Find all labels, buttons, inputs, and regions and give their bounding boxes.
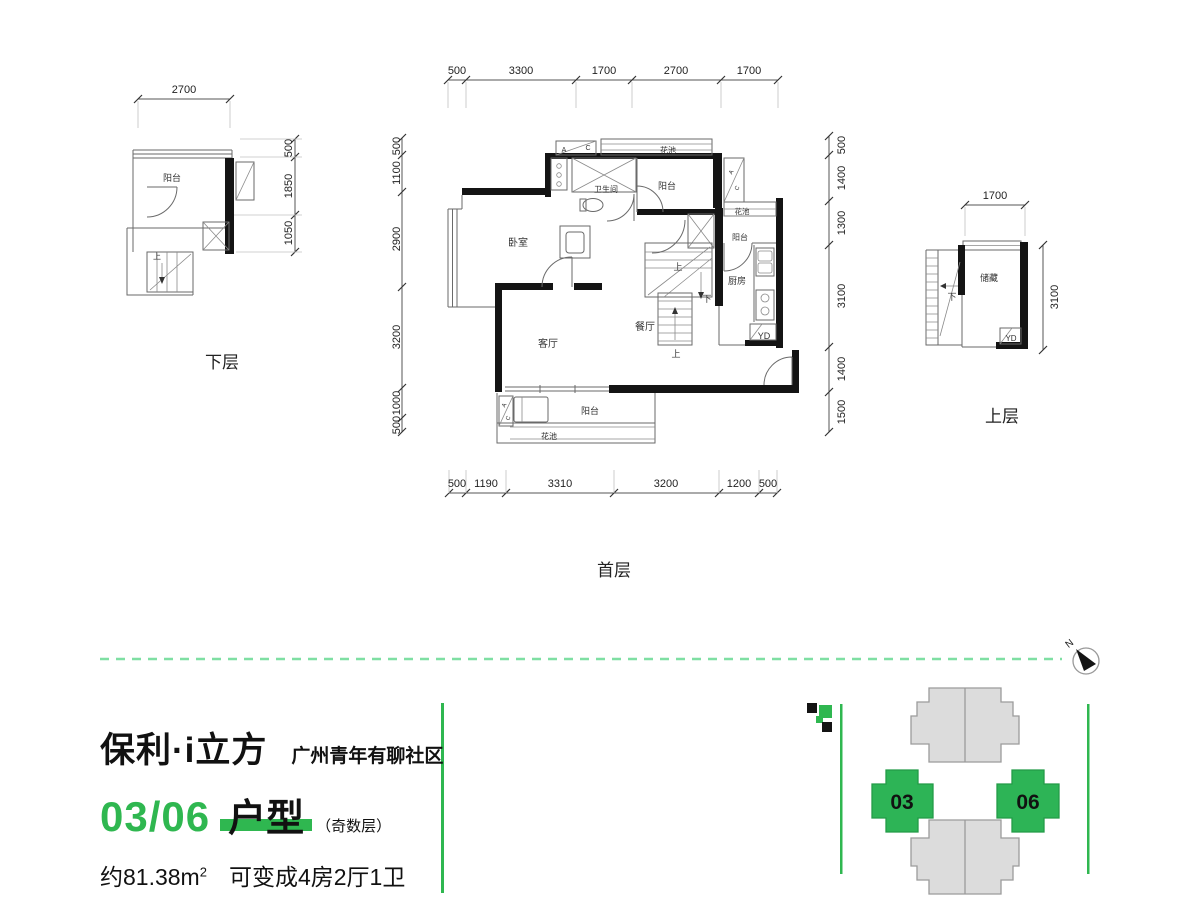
project-subtitle: 广州青年有聊社区 xyxy=(291,741,443,768)
upper-plan-walls xyxy=(926,241,1028,349)
unit-type-row: 03/06 户型 （奇数层） xyxy=(100,787,430,842)
dim-label: 1700 xyxy=(737,65,761,77)
dim-label: 1850 xyxy=(283,174,295,198)
stair-label-up: 上 xyxy=(673,262,682,272)
dim-label: 500 xyxy=(836,136,848,154)
room-label-balcony: 阳台 xyxy=(163,172,181,183)
room-label-flower-bed: 花池 xyxy=(541,431,557,441)
room-label-balcony: 阳台 xyxy=(658,180,676,191)
dim-label: 500 xyxy=(391,137,403,155)
brand-divider-line xyxy=(441,703,444,893)
ac-label-a: A xyxy=(562,147,567,154)
dim-label: 1050 xyxy=(283,221,295,245)
room-label-flower-bed: 花池 xyxy=(735,206,750,216)
room-label-laundry: YD xyxy=(758,331,771,341)
dim-label: 2700 xyxy=(664,65,688,77)
site-left-line xyxy=(840,704,843,874)
ac-label-c: C xyxy=(734,185,742,192)
dim-label: 3300 xyxy=(509,65,533,77)
dim-label: 500 xyxy=(283,139,295,157)
floor-note: （奇数层） xyxy=(316,815,391,842)
stair-label-down: 下 xyxy=(702,294,711,304)
room-label-bathroom: 卫生间 xyxy=(594,184,618,194)
compass-north-label: N xyxy=(1064,637,1076,650)
dim-label: 1500 xyxy=(836,400,848,424)
site-plan: 03 06 xyxy=(807,688,1090,894)
first-floor-caption: 首层 xyxy=(597,561,631,580)
room-label-living: 客厅 xyxy=(538,337,558,350)
upper-plan: 1700 3100 储藏 YD 下 上层 xyxy=(926,190,1061,426)
dim-label: 1190 xyxy=(474,478,498,490)
stair-arrow-left xyxy=(940,283,946,289)
dim-label: 2700 xyxy=(172,84,196,96)
stair-label-up: 上 xyxy=(671,349,680,359)
ac-label-c: C xyxy=(585,145,590,152)
branding-block: 保利·i立方 广州青年有聊社区 03/06 户型 （奇数层） 约81.38m2可… xyxy=(100,722,430,892)
dim-label: 1000 xyxy=(391,391,403,415)
checker-decoration-icon xyxy=(807,703,832,732)
dim-label: 500 xyxy=(448,478,466,490)
room-label-storage: 储藏 xyxy=(980,272,998,283)
lower-plan-walls xyxy=(127,150,254,295)
dim-label: 3100 xyxy=(1049,285,1061,309)
compass: N xyxy=(1064,637,1099,674)
lower-plan-caption: 下层 xyxy=(205,353,239,372)
area-superscript: 2 xyxy=(200,864,207,879)
unit-type-label: 户型 xyxy=(220,787,312,842)
dim-label: 500 xyxy=(759,478,777,490)
area-row: 约81.38m2可变成4房2厅1卫 xyxy=(100,858,430,892)
lower-plan-dimensions: 2700 500 1850 1050 xyxy=(134,84,302,256)
project-title: 保利·i立方 xyxy=(100,722,267,773)
lower-plan: 2700 500 1850 1050 阳台 上 下层 xyxy=(127,84,302,372)
dim-label: 1400 xyxy=(836,166,848,190)
dim-label: 3200 xyxy=(654,478,678,490)
room-label-balcony: 阳台 xyxy=(581,405,599,416)
dim-label: 1700 xyxy=(592,65,616,77)
ac-label-c: C xyxy=(505,415,513,422)
dim-label: 1700 xyxy=(983,190,1007,202)
dim-label: 500 xyxy=(391,416,403,434)
unit-03-label: 03 xyxy=(890,791,913,814)
dim-label: 1400 xyxy=(836,357,848,381)
room-label-flower-bed: 花池 xyxy=(660,145,676,155)
room-label-balcony: 阳台 xyxy=(732,232,748,242)
dim-label: 1200 xyxy=(727,478,751,490)
floorplan-page: 2700 500 1850 1050 阳台 上 下层 xyxy=(0,0,1200,900)
dim-label: 3310 xyxy=(548,478,572,490)
first-floor-plan: 500 3300 1700 2700 1700 500 1100 2900 32… xyxy=(391,65,848,580)
branding-title-row: 保利·i立方 广州青年有聊社区 xyxy=(100,722,430,773)
dim-label: 3100 xyxy=(836,284,848,308)
dim-label: 2900 xyxy=(391,227,403,251)
site-right-line xyxy=(1087,704,1090,874)
unit-06-label: 06 xyxy=(1016,791,1039,814)
stair-label-up: 上 xyxy=(153,252,161,261)
layout-description: 可变成4房2厅1卫 xyxy=(229,864,405,890)
area-value: 约81.38m xyxy=(100,864,200,890)
ac-label-a: A xyxy=(728,169,735,175)
stair-arrow xyxy=(159,277,165,284)
room-label-dining: 餐厅 xyxy=(635,320,655,333)
unit-numbers: 03/06 xyxy=(100,793,210,841)
room-label-bedroom: 卧室 xyxy=(508,236,528,249)
dim-label: 500 xyxy=(448,65,466,77)
stair-label-down: 下 xyxy=(947,292,956,302)
dim-label: 1100 xyxy=(391,161,403,185)
dim-label: 3200 xyxy=(391,325,403,349)
room-label-laundry: YD xyxy=(1005,334,1016,343)
dim-label: 1300 xyxy=(836,211,848,235)
upper-plan-caption: 上层 xyxy=(985,407,1019,426)
stair-arrow-up xyxy=(672,307,678,314)
room-label-kitchen: 厨房 xyxy=(728,275,746,286)
